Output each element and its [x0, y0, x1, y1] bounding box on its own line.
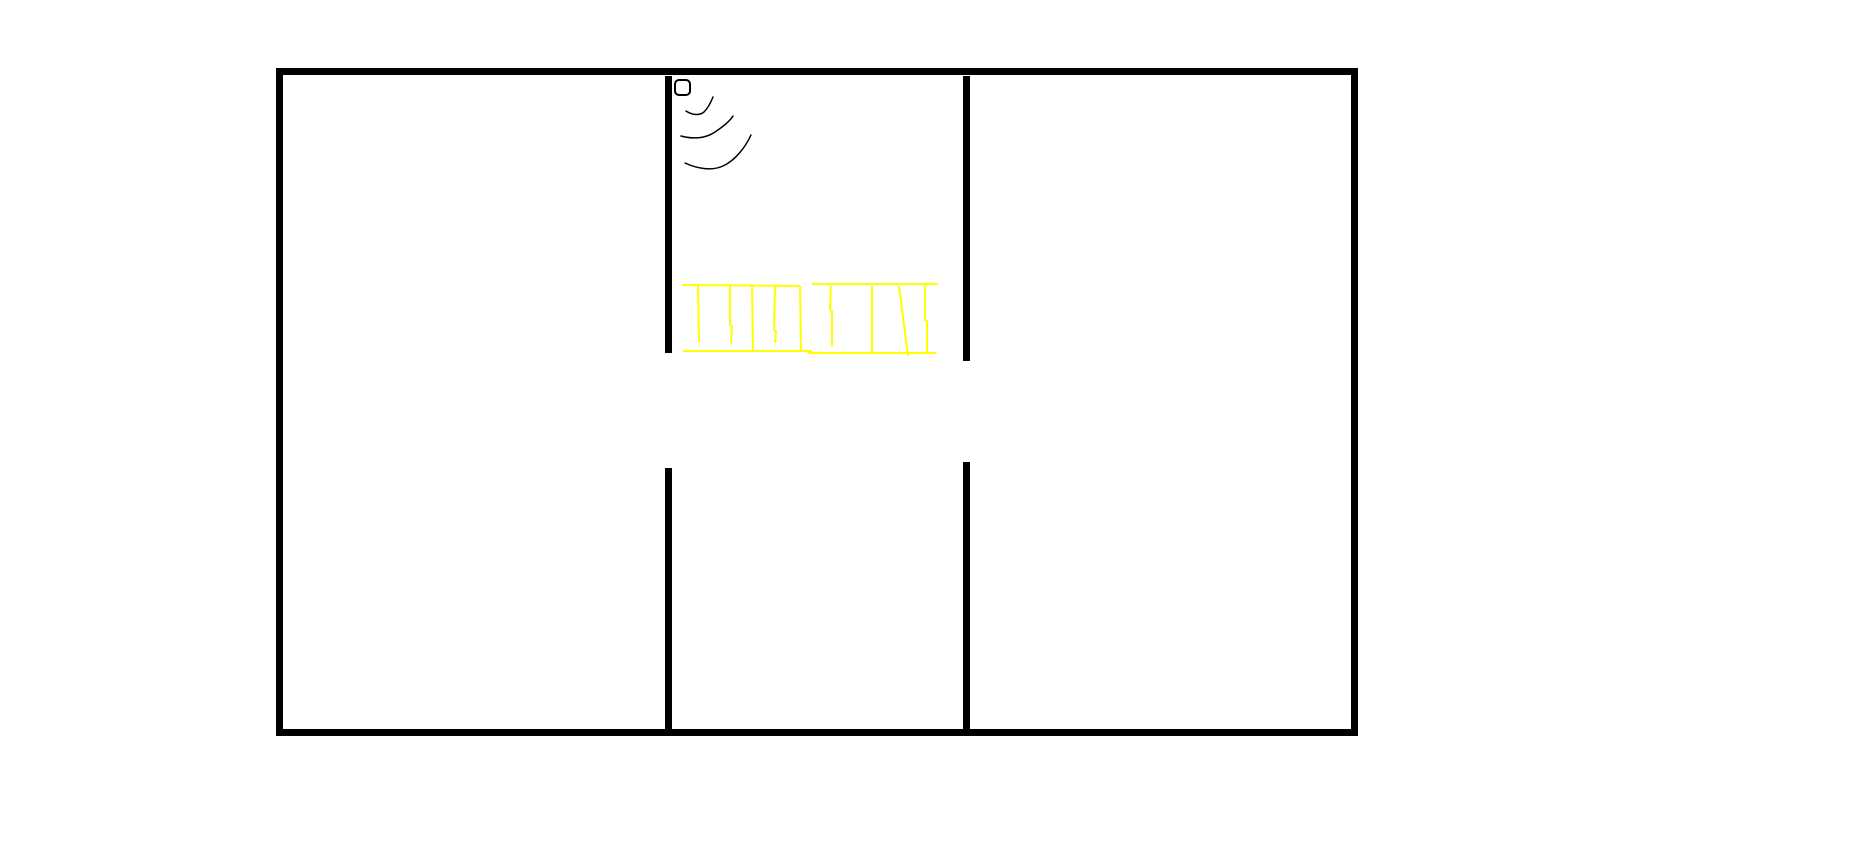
left-divider-lower — [665, 468, 672, 729]
ladder-rung-5 — [800, 286, 801, 352]
signal-wave-3 — [685, 135, 751, 169]
wifi-device-layer — [675, 80, 751, 169]
ladder-rung-4 — [774, 286, 776, 343]
outer-wall — [280, 72, 1355, 733]
ladder-rung-2 — [730, 286, 732, 344]
left-divider-upper — [665, 76, 672, 353]
wifi-device-box — [675, 80, 690, 95]
floor-plan-svg — [0, 0, 1860, 861]
walls-layer — [280, 72, 1355, 733]
signal-wave-1 — [686, 97, 713, 115]
right-divider-lower — [963, 462, 970, 729]
right-divider-upper — [963, 76, 970, 361]
ladder-layer — [682, 284, 938, 356]
ladder-rung-9 — [925, 285, 927, 352]
ladder-rung-1 — [698, 286, 699, 343]
ladder-rung-8 — [899, 286, 908, 356]
ladder-top-rail-left — [682, 285, 800, 286]
paint-canvas — [0, 0, 1860, 861]
ladder-rung-6 — [830, 286, 832, 347]
signal-wave-2 — [681, 116, 733, 138]
ladder-rung-3 — [752, 286, 753, 352]
